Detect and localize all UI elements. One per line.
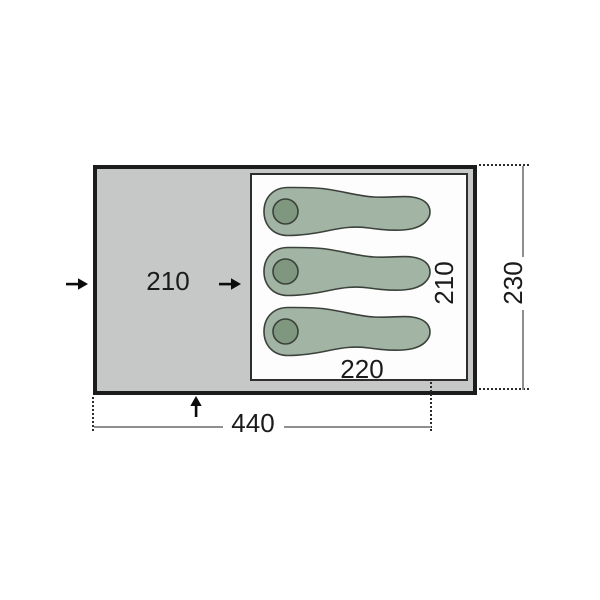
overall-depth-dim-line-lower (522, 310, 524, 390)
tent-floorplan-diagram: 210 220 210 440 230 (0, 0, 600, 600)
inner-depth-label: 210 (431, 253, 457, 313)
entrance-arrow-left-icon (66, 277, 88, 291)
sleeping-bag (262, 186, 432, 237)
overall-width-dim-line-left (94, 426, 223, 428)
entrance-arrow-inner-icon (219, 277, 241, 291)
overall-depth-dim-line-upper (522, 166, 524, 257)
sleeping-bag (262, 306, 432, 357)
extension-line-inner-right (430, 379, 432, 431)
inner-width-label: 220 (327, 356, 397, 382)
overall-width-dim-line-right (284, 426, 431, 428)
overall-depth-label: 230 (500, 253, 526, 313)
entrance-arrow-bottom-icon (189, 396, 203, 417)
overall-width-label: 440 (222, 410, 284, 436)
porch-width-label: 210 (133, 268, 203, 294)
sleeping-bag (262, 246, 432, 297)
